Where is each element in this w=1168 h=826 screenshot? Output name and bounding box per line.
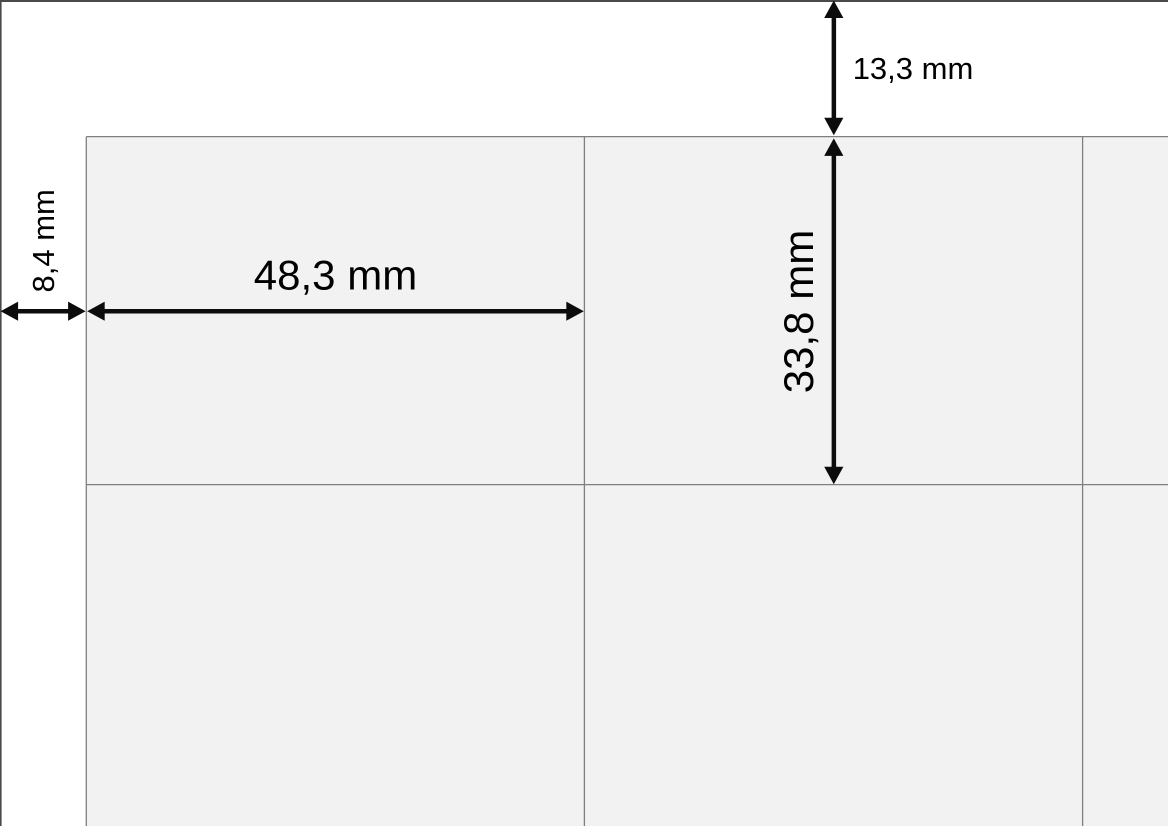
- svg-text:48,3 mm: 48,3 mm: [254, 251, 417, 298]
- svg-text:8,4 mm: 8,4 mm: [26, 189, 61, 292]
- svg-text:33,8 mm: 33,8 mm: [775, 230, 822, 393]
- svg-text:13,3 mm: 13,3 mm: [853, 51, 974, 86]
